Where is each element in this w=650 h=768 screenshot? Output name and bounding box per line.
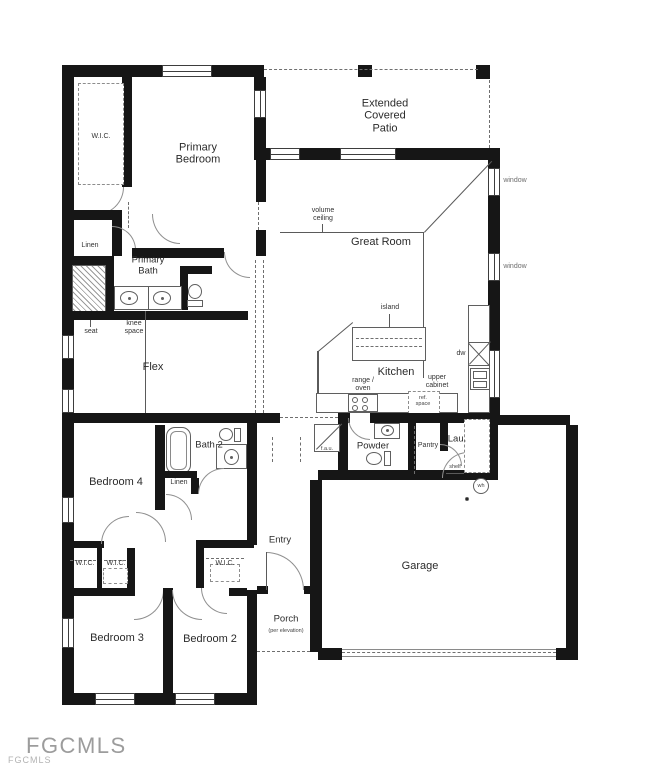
toilet <box>188 284 202 299</box>
washer-dryer-space <box>464 419 490 473</box>
window-symbol <box>62 497 74 523</box>
kitchen-label: Kitchen <box>378 366 415 378</box>
water-heater-label: wh <box>477 483 484 489</box>
floor-plan: W.I.C. Primary Bedroom Extended Covered … <box>0 0 650 768</box>
cased-opening <box>258 202 259 230</box>
wall <box>215 693 257 705</box>
toilet-tank <box>187 300 203 307</box>
window-symbol <box>62 389 74 413</box>
door-arc <box>136 512 166 542</box>
porch-outline <box>257 651 310 652</box>
primary-bedroom-label: Primary Bedroom <box>176 142 221 167</box>
wall <box>566 425 578 660</box>
range-burner <box>362 405 368 411</box>
entry-label: Entry <box>269 536 291 547</box>
wall <box>62 523 74 618</box>
upper-cabinet-label: upper cabinet <box>426 374 449 390</box>
opening-header <box>280 417 338 418</box>
powder-label: Powder <box>357 442 389 453</box>
wall <box>106 265 114 315</box>
window-label: window <box>503 177 526 185</box>
wall <box>62 210 122 220</box>
garage-door-line <box>342 652 556 653</box>
bathtub <box>166 427 191 474</box>
wall <box>180 266 212 274</box>
wall <box>488 196 500 253</box>
ceiling-break <box>300 437 301 462</box>
volume-ceiling-label: volume ceiling <box>312 207 335 223</box>
wall <box>300 148 340 160</box>
shelf-line <box>446 473 464 474</box>
window-symbol <box>270 148 300 160</box>
wall <box>155 425 165 510</box>
volume-ceiling-line <box>424 161 492 233</box>
wall <box>62 359 74 389</box>
ref-space-label: ref. space <box>416 395 431 407</box>
wall <box>310 590 322 652</box>
wall <box>62 65 162 77</box>
window-label: window <box>503 263 526 271</box>
knee-space-label: knee space <box>125 320 144 336</box>
wic-bedroom2-label: W.I.C. <box>215 560 234 568</box>
window-symbol <box>95 693 135 705</box>
door-arc <box>224 252 250 278</box>
island-overhang <box>356 346 422 347</box>
pantry-shelf <box>414 426 415 474</box>
wall <box>256 230 266 256</box>
ceiling-break <box>255 260 256 413</box>
wall <box>254 77 266 90</box>
great-room-label: Great Room <box>351 236 411 248</box>
wic-bedroom3-a-label: W.I.C. <box>75 560 94 568</box>
wall <box>196 548 204 588</box>
island-overhang <box>356 338 422 339</box>
wall <box>318 648 342 660</box>
window-symbol <box>162 65 212 77</box>
wall <box>62 311 248 320</box>
garage-label: Garage <box>402 560 439 572</box>
ceiling-break <box>272 437 273 462</box>
wall <box>247 590 257 693</box>
fau-label: f.a.u. <box>321 446 333 452</box>
bath2-label: Bath 2 <box>195 441 222 452</box>
wall <box>163 471 197 478</box>
sink <box>153 291 171 305</box>
door-arc <box>266 552 304 590</box>
window-symbol <box>175 693 215 705</box>
door-arc <box>166 494 192 520</box>
wall <box>254 148 270 160</box>
wall <box>62 588 133 596</box>
garage-door <box>342 649 556 657</box>
wall <box>304 586 312 594</box>
wall <box>488 148 500 168</box>
wall <box>163 588 173 705</box>
door-arc <box>172 590 202 620</box>
door-arc <box>198 468 224 494</box>
window-symbol <box>488 253 500 281</box>
range-burner <box>352 397 358 403</box>
wall <box>498 415 570 425</box>
toilet-tank <box>384 451 391 466</box>
door-arc <box>134 590 164 620</box>
wall <box>97 548 102 588</box>
ceiling-break <box>263 260 264 413</box>
wall <box>62 693 95 705</box>
wall <box>556 648 578 660</box>
door-arc <box>152 214 180 244</box>
range-oven-label: range / oven <box>352 377 374 393</box>
wall <box>256 160 266 202</box>
wall <box>310 480 322 592</box>
linen-primary-label: Linen <box>81 242 98 250</box>
mls-watermark-small: FGCMLS <box>8 755 52 765</box>
range-burner <box>352 405 358 411</box>
kitchen-half-wall <box>317 351 319 393</box>
patio-post <box>358 65 372 77</box>
bedroom4-label: Bedroom 4 <box>89 476 143 488</box>
primary-bath-label: Primary Bath <box>132 255 165 276</box>
pantry-label: Pantry <box>418 442 438 450</box>
flex-label: Flex <box>143 361 164 373</box>
bedroom3-label: Bedroom 3 <box>90 632 144 644</box>
wall <box>396 148 500 160</box>
cased-opening <box>128 202 129 228</box>
door-leaf <box>266 552 267 590</box>
sink <box>224 449 239 465</box>
sink <box>120 291 138 305</box>
closet-shelf <box>103 568 128 584</box>
window-symbol <box>488 168 500 196</box>
column-dot <box>465 497 469 501</box>
island-leader-line <box>389 314 390 327</box>
wall <box>62 541 104 548</box>
window-symbol <box>340 148 396 160</box>
linen-hall-label: Linen <box>170 479 187 487</box>
shower <box>72 265 106 315</box>
patio-post <box>476 65 490 79</box>
kitchen-sink-bowl <box>473 371 487 379</box>
wall <box>229 588 247 596</box>
window-symbol <box>62 618 74 648</box>
volume-ceiling-line <box>280 232 424 233</box>
shelf-label: shelf <box>449 464 461 470</box>
seat-label: seat <box>84 328 97 336</box>
extended-patio-label: Extended Covered Patio <box>362 97 408 134</box>
door-arc <box>101 516 129 544</box>
volume-ceiling-leader <box>322 224 323 233</box>
door-arc <box>348 418 370 440</box>
toilet-tank <box>234 428 241 442</box>
door-arc <box>112 226 136 250</box>
wall <box>247 413 257 545</box>
wic-bedroom3-b-label: W.I.C. <box>106 560 125 568</box>
dishwasher-label: dw <box>457 350 466 358</box>
toilet <box>366 452 382 465</box>
wic-primary-label: W.I.C. <box>91 133 110 141</box>
window-symbol <box>254 90 266 118</box>
kitchen-sink-bowl <box>473 381 487 388</box>
kitchen-island <box>352 327 426 361</box>
wall <box>62 413 74 497</box>
patio-outline <box>489 80 490 148</box>
porch-note-label: (per elevation) <box>268 628 303 634</box>
range-burner <box>362 397 368 403</box>
wall <box>254 118 266 148</box>
wall <box>196 540 254 548</box>
wall <box>212 65 264 77</box>
closet-rod <box>206 558 244 559</box>
window-symbol <box>62 335 74 359</box>
laundry-label: Lau. <box>448 435 467 446</box>
bedroom2-label: Bedroom 2 <box>183 633 237 645</box>
door-arc <box>201 588 227 614</box>
wall <box>62 256 114 265</box>
sink <box>381 425 394 436</box>
vanity-divider <box>148 287 149 309</box>
kitchen-half-wall <box>318 322 353 352</box>
porch-label: Porch <box>274 615 299 626</box>
patio-outline <box>264 69 478 70</box>
island-label: island <box>381 304 399 312</box>
